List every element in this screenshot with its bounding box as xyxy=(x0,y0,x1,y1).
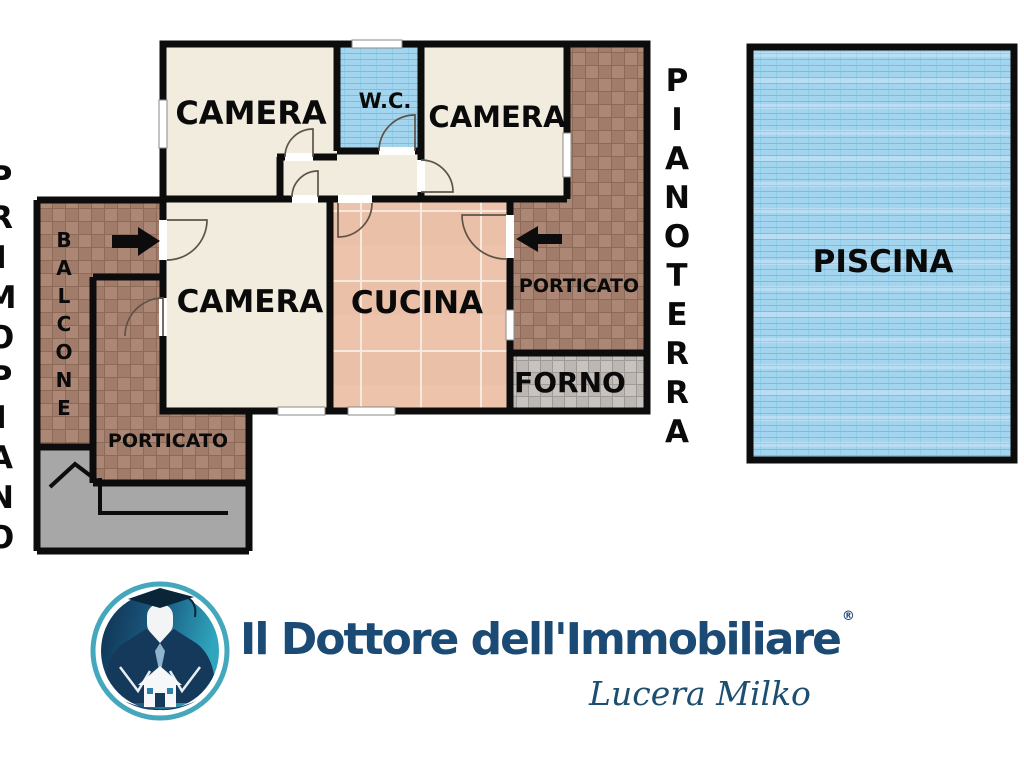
camera3-window xyxy=(278,407,325,415)
cucina-label: CUCINA xyxy=(351,285,483,321)
primopiano-letter: P xyxy=(0,160,12,196)
camera3-door-gap xyxy=(292,195,318,203)
porticato-left-label: PORTICATO xyxy=(108,430,228,452)
registered-trademark-icon: ® xyxy=(842,609,855,624)
balcone-letter: E xyxy=(57,396,71,420)
pianoterra-letter: P xyxy=(666,63,689,99)
primopiano-letter: N xyxy=(0,480,14,516)
pianoterra-letter: T xyxy=(666,258,687,294)
camera1-window xyxy=(159,100,167,148)
first-floor-label: P R I M O P I A N O xyxy=(0,160,16,556)
balcone-letter: N xyxy=(56,368,73,392)
piscina-label: PISCINA xyxy=(813,244,954,280)
camera2-door-gap xyxy=(417,160,425,192)
camera3-label: CAMERA xyxy=(177,284,324,320)
camera1-label: CAMERA xyxy=(175,94,327,132)
primopiano-letter: O xyxy=(0,520,14,556)
porticato-right-label: PORTICATO xyxy=(519,275,639,297)
pianoterra-letter: A xyxy=(665,414,689,450)
agency-logo xyxy=(93,584,227,718)
balcone-letter: B xyxy=(56,228,71,252)
brand-company-name: Il Dottore dell'Immobiliare xyxy=(240,614,840,665)
pianoterra-letter: I xyxy=(671,102,683,138)
primopiano-letter: O xyxy=(0,320,14,356)
brand-agent-signature: Lucera Milko xyxy=(480,674,920,713)
primopiano-letter: R xyxy=(0,200,13,236)
cucina-door-gap xyxy=(338,195,372,203)
primopiano-letter: I xyxy=(0,400,7,436)
ground-floor-label: P I A N O T E R R A xyxy=(664,63,690,450)
balcone-label: B A L C O N E xyxy=(55,228,72,420)
porticato-right-door-gap xyxy=(506,215,514,258)
floorplan-page: CAMERA W.C. CAMERA CAMERA CUCINA PORTICA… xyxy=(0,0,1024,768)
primopiano-letter: I xyxy=(0,240,7,276)
pianoterra-letter: N xyxy=(664,180,690,216)
primopiano-letter: A xyxy=(0,440,13,476)
brand-wordmark: Il Dottore dell'Immobiliare® xyxy=(240,614,1000,665)
camera2-window xyxy=(563,133,571,177)
balcone-letter: C xyxy=(57,312,72,336)
camera1-door-gap xyxy=(285,153,313,161)
pianoterra-letter: R xyxy=(665,336,689,372)
wc-window xyxy=(352,40,402,48)
cucina-side-window xyxy=(506,310,514,340)
pianoterra-letter: E xyxy=(666,297,687,333)
balcone-letter: O xyxy=(55,340,72,364)
wc-door-gap xyxy=(379,147,415,155)
pianoterra-letter: O xyxy=(664,219,690,255)
cucina-bottom-window xyxy=(348,407,395,415)
balcone-letter: L xyxy=(58,284,71,308)
primopiano-letter: P xyxy=(0,360,12,396)
wc-label: W.C. xyxy=(359,89,412,113)
pianoterra-letter: R xyxy=(665,375,689,411)
camera2-label: CAMERA xyxy=(428,100,566,134)
balcone-door-gap xyxy=(159,220,167,260)
pianoterra-letter: A xyxy=(665,141,689,177)
balcone-letter: A xyxy=(56,256,72,280)
forno-label: FORNO xyxy=(514,366,626,399)
primopiano-letter: M xyxy=(0,280,16,316)
